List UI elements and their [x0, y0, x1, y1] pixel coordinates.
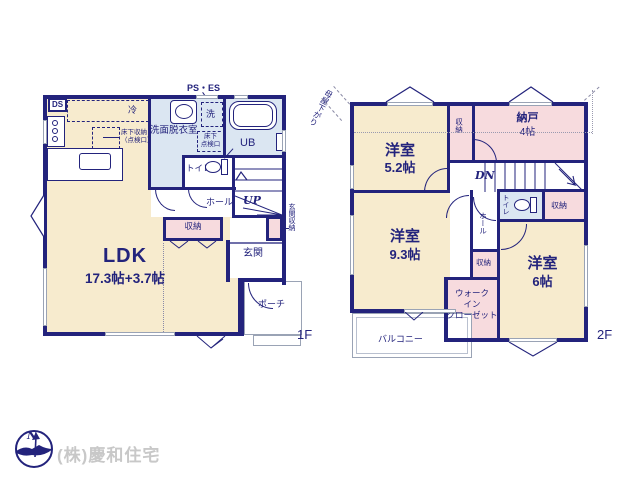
window	[43, 268, 47, 326]
sliding-door-mark	[508, 342, 558, 358]
compass-icon: N	[10, 424, 58, 472]
window	[105, 332, 175, 336]
window	[282, 130, 286, 152]
1f-entrance-storage-label: 玄関収納	[288, 203, 295, 231]
bay-window	[28, 194, 45, 238]
washroom-label: 洗面脱衣室	[150, 126, 198, 137]
wall	[444, 277, 500, 280]
window	[234, 95, 248, 99]
2f-room-b-label: 洋室	[375, 228, 435, 245]
2f-nando-label: 納戸	[505, 112, 550, 125]
wall	[542, 192, 545, 222]
1f-ds-label: DS	[48, 100, 67, 109]
hanger-marks	[166, 240, 222, 249]
underfloor-storage-box	[92, 127, 120, 149]
roof-vent-icon	[385, 86, 435, 103]
washer-label: 洗	[206, 109, 215, 119]
eaves-dotted-v	[592, 90, 593, 134]
eaves-dash	[333, 86, 350, 105]
2f-wic-label: ウォークインクローゼット	[442, 288, 502, 321]
sliding-door-mark	[196, 336, 228, 351]
toilet-tank	[221, 159, 228, 175]
toilet-tank	[530, 197, 537, 213]
wall	[470, 249, 500, 252]
2f-dn-label: DN	[475, 170, 495, 183]
2f-storage-b-label: 収納	[551, 201, 567, 210]
floorplan-2f: DN トイレ 洋室 5.2帖 収納 納戸 4帖 収納 ホール 収納 洋室 9.3…	[320, 0, 640, 480]
wall	[497, 219, 587, 222]
ldk-size-label: 17.3帖+3.7帖	[68, 271, 182, 287]
window	[43, 120, 47, 144]
1f-up-label: UP	[243, 195, 261, 208]
1f-tag: 1F	[297, 328, 312, 343]
washbasin-bowl	[175, 104, 193, 119]
leader-line	[103, 137, 120, 138]
wall	[238, 278, 286, 282]
area-divider-dotted	[163, 243, 164, 332]
wall	[226, 240, 230, 282]
fridge-label: 冷	[128, 105, 137, 115]
2f-room-a-label: 洋室	[370, 142, 430, 159]
company-name: (株)慶和住宅	[57, 446, 160, 466]
bath-label: UB	[240, 137, 255, 150]
wall	[447, 106, 450, 193]
bathtub-inner	[233, 104, 273, 127]
wall	[350, 102, 354, 313]
floorplan-1f: DS 冷 床下収納（点検口） 洗 洗面脱衣室 床下点検口 PS・ES	[0, 0, 340, 480]
window	[196, 95, 218, 99]
kitchen-sink	[79, 153, 111, 170]
roof-vent-icon	[508, 86, 554, 103]
2f-storage-a	[447, 106, 472, 163]
2f-toilet-label: トイレ	[502, 194, 509, 215]
stove-burner	[52, 136, 58, 142]
2f-balcony-label: バルコニー	[378, 334, 423, 344]
2f-room-a-size: 5.2帖	[370, 161, 430, 176]
1f-entrance-label: 玄関	[243, 248, 263, 260]
toilet-icon	[514, 199, 530, 211]
stove-burner	[52, 120, 58, 126]
window	[350, 165, 354, 189]
1f-hall-label: ホール	[206, 197, 233, 207]
wall	[238, 278, 244, 336]
2f-storage-a-label: 収納	[455, 118, 463, 133]
toilet-icon	[205, 161, 221, 173]
wall	[182, 155, 185, 190]
2f-room-b-size: 9.3帖	[375, 248, 435, 263]
1f-storage-label: 収納	[163, 222, 223, 232]
hatch-label: 床下点検口	[197, 133, 224, 149]
window	[584, 245, 588, 307]
stove-burner	[52, 128, 58, 134]
1f-porch-step	[253, 335, 301, 346]
2f-storage-c-label: 収納	[470, 259, 497, 268]
ldk-label: LDK	[80, 245, 170, 268]
porch-label: ポーチ	[258, 299, 285, 309]
2f-room-c-label: 洋室	[515, 255, 570, 272]
underfloor-storage-label: 床下収納（点検口）	[121, 129, 154, 145]
wall	[282, 95, 286, 285]
2f-room-c-size: 6帖	[515, 275, 570, 290]
ceiling-dotted-line	[354, 132, 592, 133]
entrance-step-line	[230, 242, 282, 244]
window	[350, 215, 354, 275]
wall	[43, 95, 286, 99]
floorplan-canvas: DS 冷 床下収納（点検口） 洗 洗面脱衣室 床下点検口 PS・ES	[0, 0, 640, 480]
2f-tag: 2F	[597, 328, 612, 343]
opening-chevron	[404, 312, 424, 322]
